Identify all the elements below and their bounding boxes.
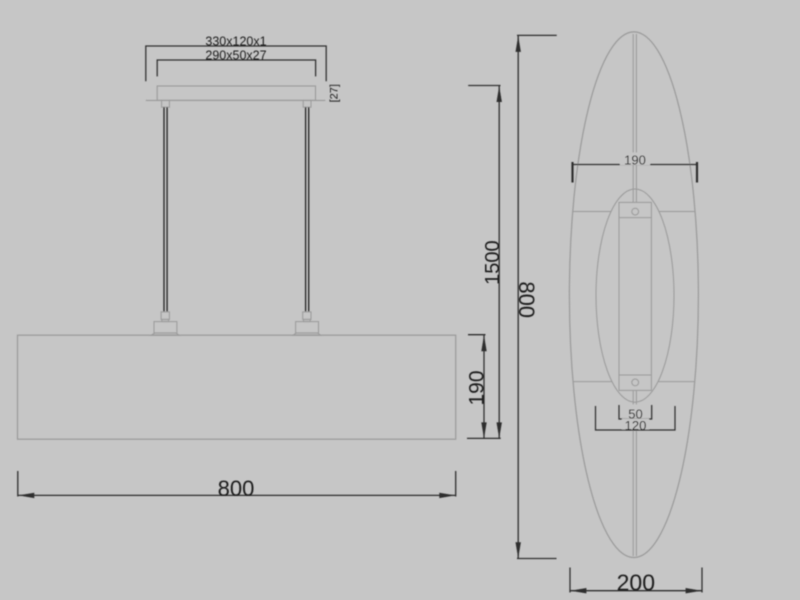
svg-text:120: 120 [625,418,647,433]
svg-text:190: 190 [466,370,489,405]
svg-text:800: 800 [218,476,255,501]
svg-text:200: 200 [617,569,655,595]
svg-text:290x50x27: 290x50x27 [205,49,266,63]
svg-text:800: 800 [514,281,539,318]
svg-text:1500: 1500 [482,240,504,285]
svg-text:[27]: [27] [329,84,341,102]
svg-text:190: 190 [624,152,646,167]
svg-text:330x120x1: 330x120x1 [205,35,266,49]
